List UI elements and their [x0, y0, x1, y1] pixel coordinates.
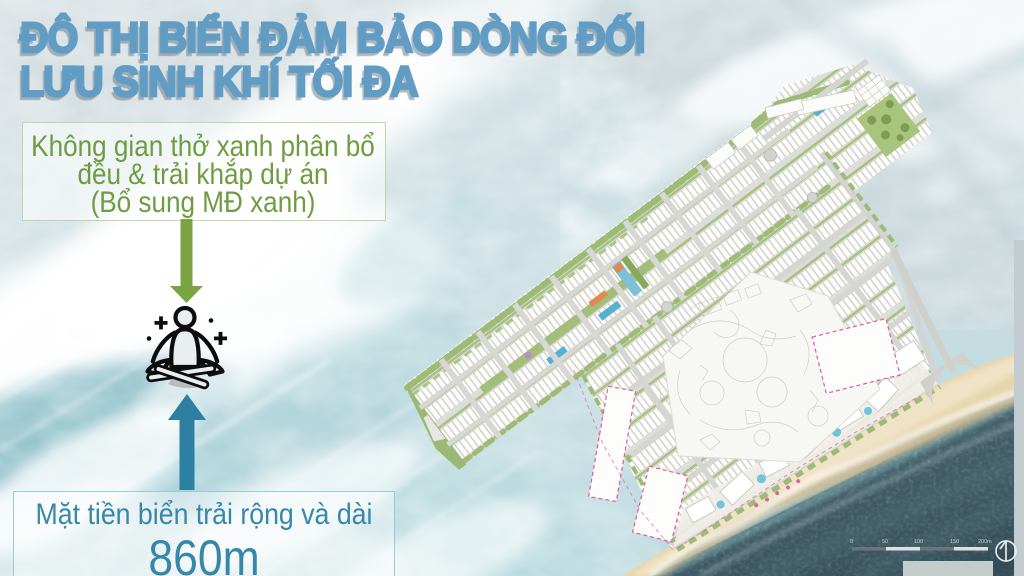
svg-text:50: 50 — [882, 539, 888, 545]
svg-text:0: 0 — [850, 539, 853, 545]
svg-text:200m: 200m — [978, 539, 992, 545]
svg-text:150: 150 — [950, 539, 959, 545]
svg-text:100: 100 — [914, 539, 923, 545]
